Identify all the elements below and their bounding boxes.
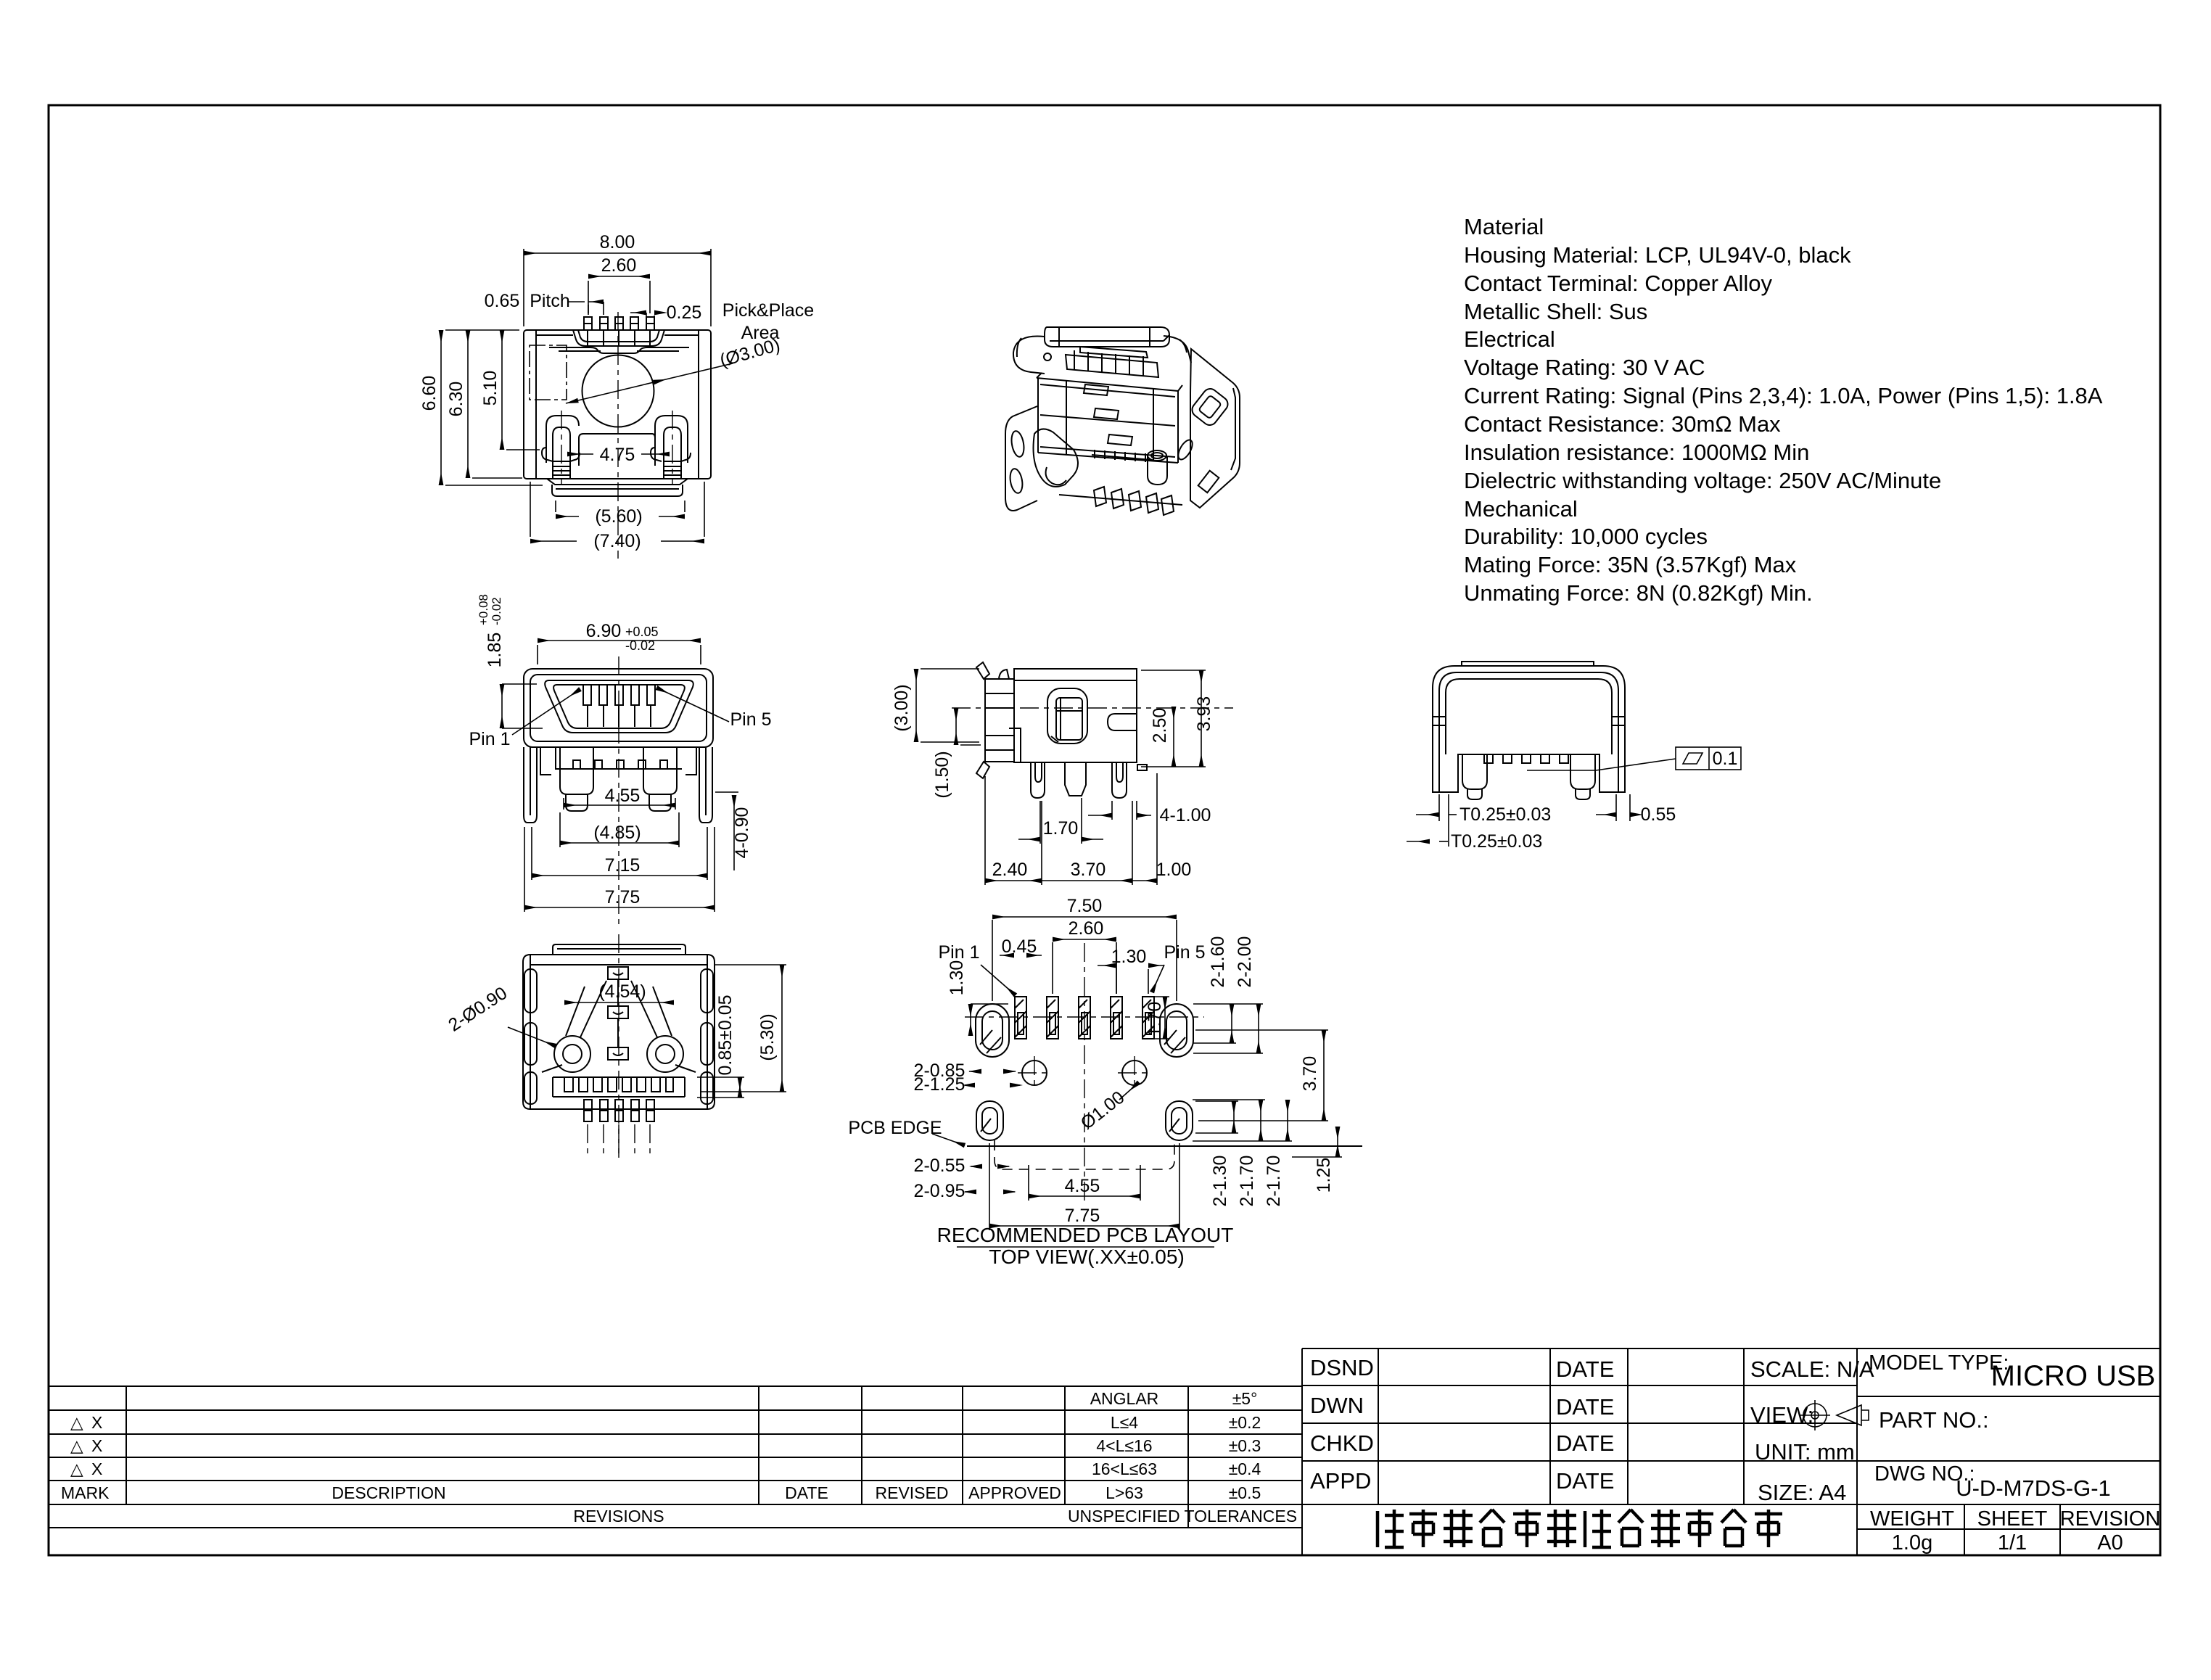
svg-text:T0.25±0.03: T0.25±0.03 [1459,804,1551,825]
svg-text:APPD: APPD [1310,1468,1371,1494]
svg-text:Current Rating: Signal (Pins 2: Current Rating: Signal (Pins 2,3,4): 1.0… [1464,383,2103,408]
svg-text:1.85: 1.85 [485,633,505,668]
svg-text:DATE: DATE [785,1483,828,1502]
svg-text:Pin 1: Pin 1 [469,729,511,749]
svg-text:7.75: 7.75 [605,887,641,907]
svg-text:Contact Resistance: 30mΩ Max: Contact Resistance: 30mΩ Max [1464,411,1781,437]
svg-text:MODEL TYPE:: MODEL TYPE: [1869,1351,2009,1375]
svg-text:L>63: L>63 [1105,1483,1143,1502]
svg-text:DATE: DATE [1556,1468,1614,1494]
svg-text:3.93: 3.93 [1194,696,1214,732]
svg-text:-0.02: -0.02 [490,597,503,625]
svg-text:1.25: 1.25 [1314,1158,1334,1193]
svg-text:2-1.70: 2-1.70 [1237,1156,1257,1207]
svg-text:Unmating Force: 8N (0.82Kgf) M: Unmating Force: 8N (0.82Kgf) Min. [1464,580,1813,606]
svg-text:UNIT: mm: UNIT: mm [1755,1439,1855,1465]
svg-text:2-1.70: 2-1.70 [1264,1156,1284,1207]
svg-text:SHEET: SHEET [1977,1507,2048,1531]
svg-text:0.85±0.05: 0.85±0.05 [715,995,736,1075]
svg-text:(1.50): (1.50) [932,751,952,798]
svg-text:Housing Material: LCP, UL94V-0: Housing Material: LCP, UL94V-0, black [1464,242,1851,268]
svg-text:A0: A0 [2097,1531,2123,1555]
svg-text:PART NO.:: PART NO.: [1879,1407,1989,1433]
svg-text:3.70: 3.70 [1071,860,1106,880]
svg-text:4-1.00: 4-1.00 [1160,805,1211,825]
svg-text:4.55: 4.55 [605,786,641,806]
svg-text:ANGLAR: ANGLAR [1090,1389,1159,1408]
svg-text:(5.60): (5.60) [595,506,642,527]
svg-text:±0.5: ±0.5 [1229,1483,1261,1502]
svg-text:WEIGHT: WEIGHT [1870,1507,1954,1531]
svg-text:0.25: 0.25 [667,302,702,323]
svg-text:1.30: 1.30 [947,960,967,996]
svg-text:DATE: DATE [1556,1430,1614,1456]
svg-text:7.50: 7.50 [1067,896,1103,916]
svg-text:DSND: DSND [1310,1355,1374,1380]
svg-text:4<L≤16: 4<L≤16 [1096,1436,1152,1455]
svg-text:(5.30): (5.30) [757,1013,778,1061]
svg-text:(3.00): (3.00) [892,684,912,731]
svg-text:7.15: 7.15 [605,855,641,876]
svg-text:2-0.55: 2-0.55 [914,1156,965,1176]
svg-text:DATE: DATE [1556,1394,1614,1420]
svg-text:Dielectric withstanding voltag: Dielectric withstanding voltage: 250V AC… [1464,468,1941,493]
svg-text:SCALE: N/A: SCALE: N/A [1750,1356,1874,1382]
svg-text:Electrical: Electrical [1464,326,1555,352]
svg-text:1.00: 1.00 [1156,860,1192,880]
svg-text:2.60: 2.60 [601,255,637,276]
svg-text:4.75: 4.75 [600,445,635,465]
svg-text:6.60: 6.60 [419,376,440,411]
svg-text:U-D-M7DS-G-1: U-D-M7DS-G-1 [1956,1475,2111,1501]
svg-text:APPROVED: APPROVED [968,1483,1061,1502]
svg-text:Pin 1: Pin 1 [939,942,980,963]
svg-text:MICRO USB: MICRO USB [1991,1360,2156,1392]
svg-text:△: △ [70,1436,83,1455]
svg-text:2-0.95: 2-0.95 [914,1181,965,1201]
svg-text:Voltage Rating: 30 V AC: Voltage Rating: 30 V AC [1464,355,1705,380]
svg-text:DATE: DATE [1556,1356,1614,1382]
svg-text:REVISIONS: REVISIONS [573,1507,664,1525]
svg-text:Material: Material [1464,214,1544,239]
svg-text:Pick&Place: Pick&Place [722,300,814,321]
svg-text:±0.2: ±0.2 [1229,1413,1261,1432]
svg-text:2-1.60: 2-1.60 [1208,936,1228,988]
svg-text:REVISED: REVISED [876,1483,949,1502]
svg-text:(4.85): (4.85) [593,823,641,843]
svg-text:+0.08: +0.08 [477,594,490,625]
svg-text:L≤4: L≤4 [1111,1413,1138,1432]
svg-text:PCB EDGE: PCB EDGE [848,1118,942,1138]
svg-text:(7.40): (7.40) [593,531,641,551]
svg-text:2-1.25: 2-1.25 [914,1074,965,1095]
svg-text:0.1: 0.1 [1713,749,1738,769]
svg-text:±5°: ±5° [1232,1389,1258,1408]
svg-text:2.60: 2.60 [1069,918,1104,939]
svg-text:+0.05: +0.05 [625,625,659,639]
svg-text:Contact Terminal: Copper Alloy: Contact Terminal: Copper Alloy [1464,271,1773,296]
svg-text:1.0g: 1.0g [1892,1531,1932,1555]
svg-text:8.00: 8.00 [600,232,635,252]
svg-text:2.40: 2.40 [992,860,1028,880]
svg-text:4.55: 4.55 [1065,1176,1100,1196]
svg-text:0.65: 0.65 [485,291,520,311]
svg-text:SIZE: A4: SIZE: A4 [1758,1480,1846,1505]
svg-text:Mechanical: Mechanical [1464,496,1578,522]
svg-text:X: X [91,1436,102,1455]
svg-text:±0.4: ±0.4 [1229,1459,1261,1478]
svg-text:Insulation resistance: 1000MΩ: Insulation resistance: 1000MΩ Min [1464,440,1809,465]
svg-text:X: X [91,1459,102,1478]
svg-text:T0.25±0.03: T0.25±0.03 [1451,831,1542,852]
svg-text:-0.02: -0.02 [625,638,655,653]
svg-text:5.10: 5.10 [480,371,501,406]
svg-text:Mating Force: 35N (3.57Kgf) Ma: Mating Force: 35N (3.57Kgf) Max [1464,552,1797,577]
svg-text:Pin 5: Pin 5 [1164,942,1206,963]
svg-text:(4.54): (4.54) [598,981,646,1002]
svg-text:2-2.00: 2-2.00 [1235,936,1255,988]
svg-text:RECOMMENDED PCB LAYOUT: RECOMMENDED PCB LAYOUT [937,1224,1234,1246]
svg-text:TOP VIEW(.XX±0.05): TOP VIEW(.XX±0.05) [989,1245,1185,1268]
svg-text:UNSPECIFIED TOLERANCES: UNSPECIFIED TOLERANCES [1068,1507,1297,1525]
svg-text:Pitch: Pitch [530,291,570,311]
svg-text:6.90: 6.90 [586,621,622,641]
svg-text:1/1: 1/1 [1998,1531,2027,1555]
svg-text:±0.3: ±0.3 [1229,1436,1261,1455]
svg-text:DWN: DWN [1310,1393,1364,1418]
svg-text:16<L≤63: 16<L≤63 [1092,1459,1157,1478]
svg-text:CHKD: CHKD [1310,1430,1374,1456]
svg-text:0.55: 0.55 [1641,804,1676,825]
svg-text:7.75: 7.75 [1065,1206,1100,1226]
svg-text:0.45: 0.45 [1002,936,1037,957]
svg-text:△: △ [70,1459,83,1478]
svg-text:Metallic Shell: Sus: Metallic Shell: Sus [1464,299,1647,324]
svg-text:Durability: 10,000 cycles: Durability: 10,000 cycles [1464,524,1708,549]
svg-text:2.50: 2.50 [1150,708,1170,744]
svg-text:REVISION: REVISION [2060,1507,2161,1531]
svg-text:MARK: MARK [61,1483,110,1502]
svg-text:1.70: 1.70 [1145,1002,1165,1037]
svg-text:3.70: 3.70 [1300,1056,1320,1092]
svg-text:1.70: 1.70 [1043,818,1079,839]
svg-text:4-0.90: 4-0.90 [732,807,752,859]
svg-text:DESCRIPTION: DESCRIPTION [332,1483,445,1502]
svg-text:Pin 5: Pin 5 [730,709,772,730]
svg-text:X: X [91,1413,102,1432]
svg-text:6.30: 6.30 [446,382,466,417]
svg-text:△: △ [70,1413,83,1432]
svg-text:2-1.30: 2-1.30 [1210,1156,1230,1207]
